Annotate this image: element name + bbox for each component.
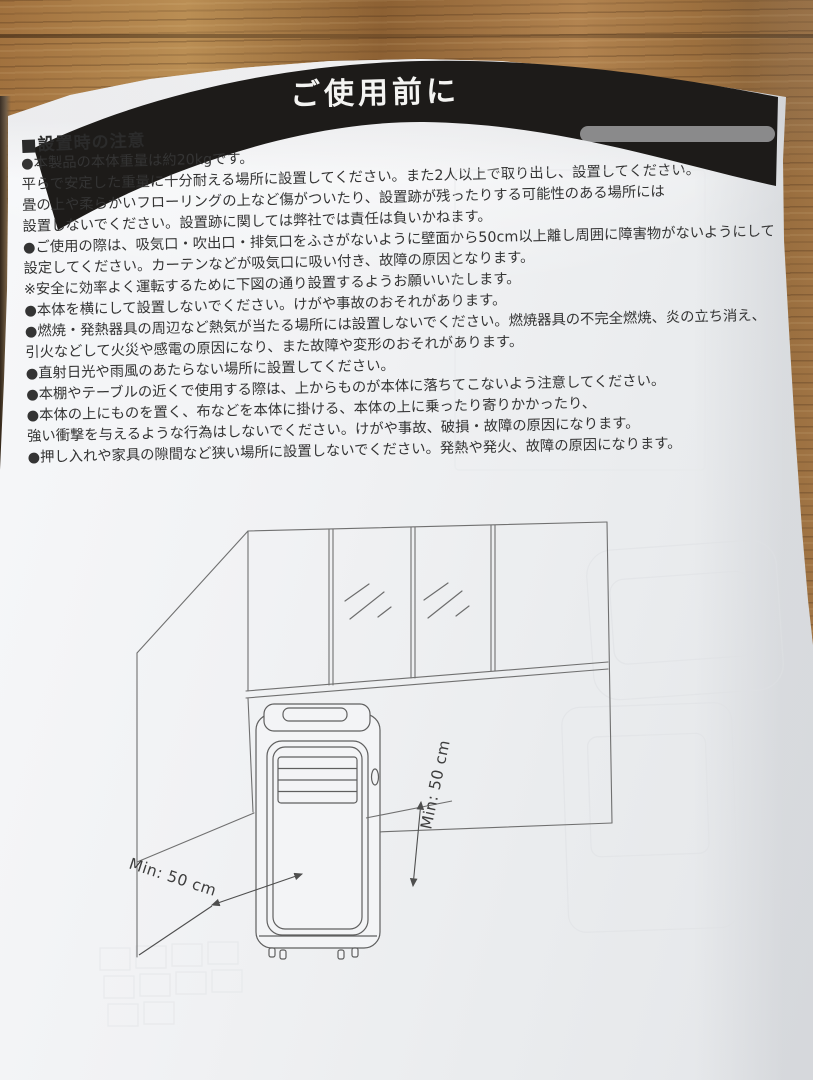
installation-notes: ●本製品の本体重量は約20kgです。 平らで安定した重量に十分耐える場所に設置し… bbox=[21, 137, 810, 469]
